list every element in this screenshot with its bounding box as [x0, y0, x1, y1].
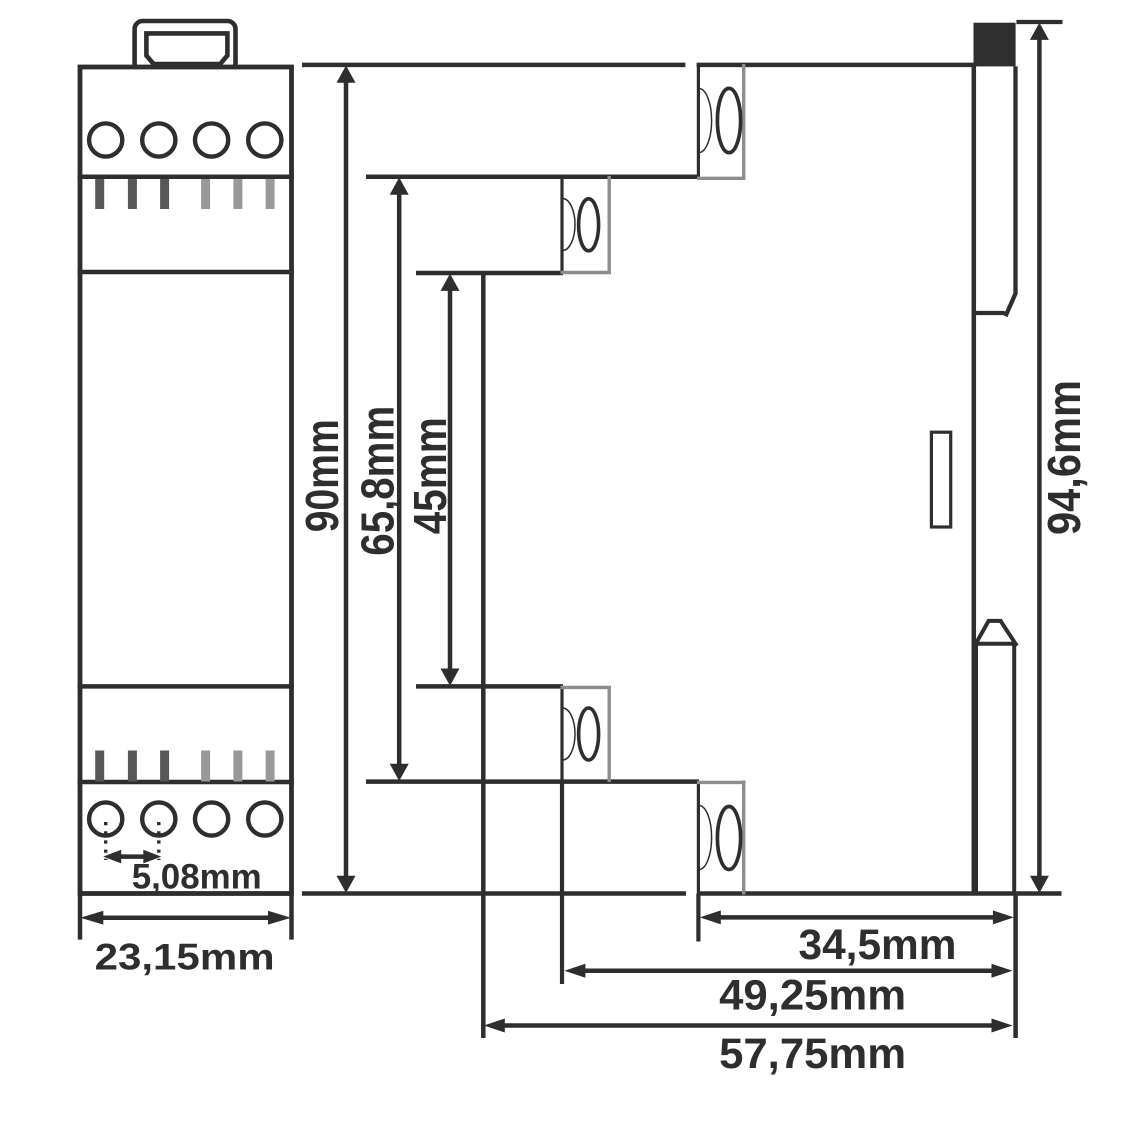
- svg-text:34,5mm: 34,5mm: [799, 921, 957, 969]
- svg-text:94,6mm: 94,6mm: [1038, 380, 1090, 535]
- svg-text:49,25mm: 49,25mm: [719, 972, 906, 1020]
- svg-text:45mm: 45mm: [404, 417, 456, 534]
- svg-text:90mm: 90mm: [296, 419, 348, 532]
- svg-text:65,8mm: 65,8mm: [352, 406, 404, 556]
- svg-text:5,08mm: 5,08mm: [132, 857, 262, 896]
- svg-text:23,15mm: 23,15mm: [95, 936, 275, 978]
- svg-text:57,75mm: 57,75mm: [719, 1030, 906, 1078]
